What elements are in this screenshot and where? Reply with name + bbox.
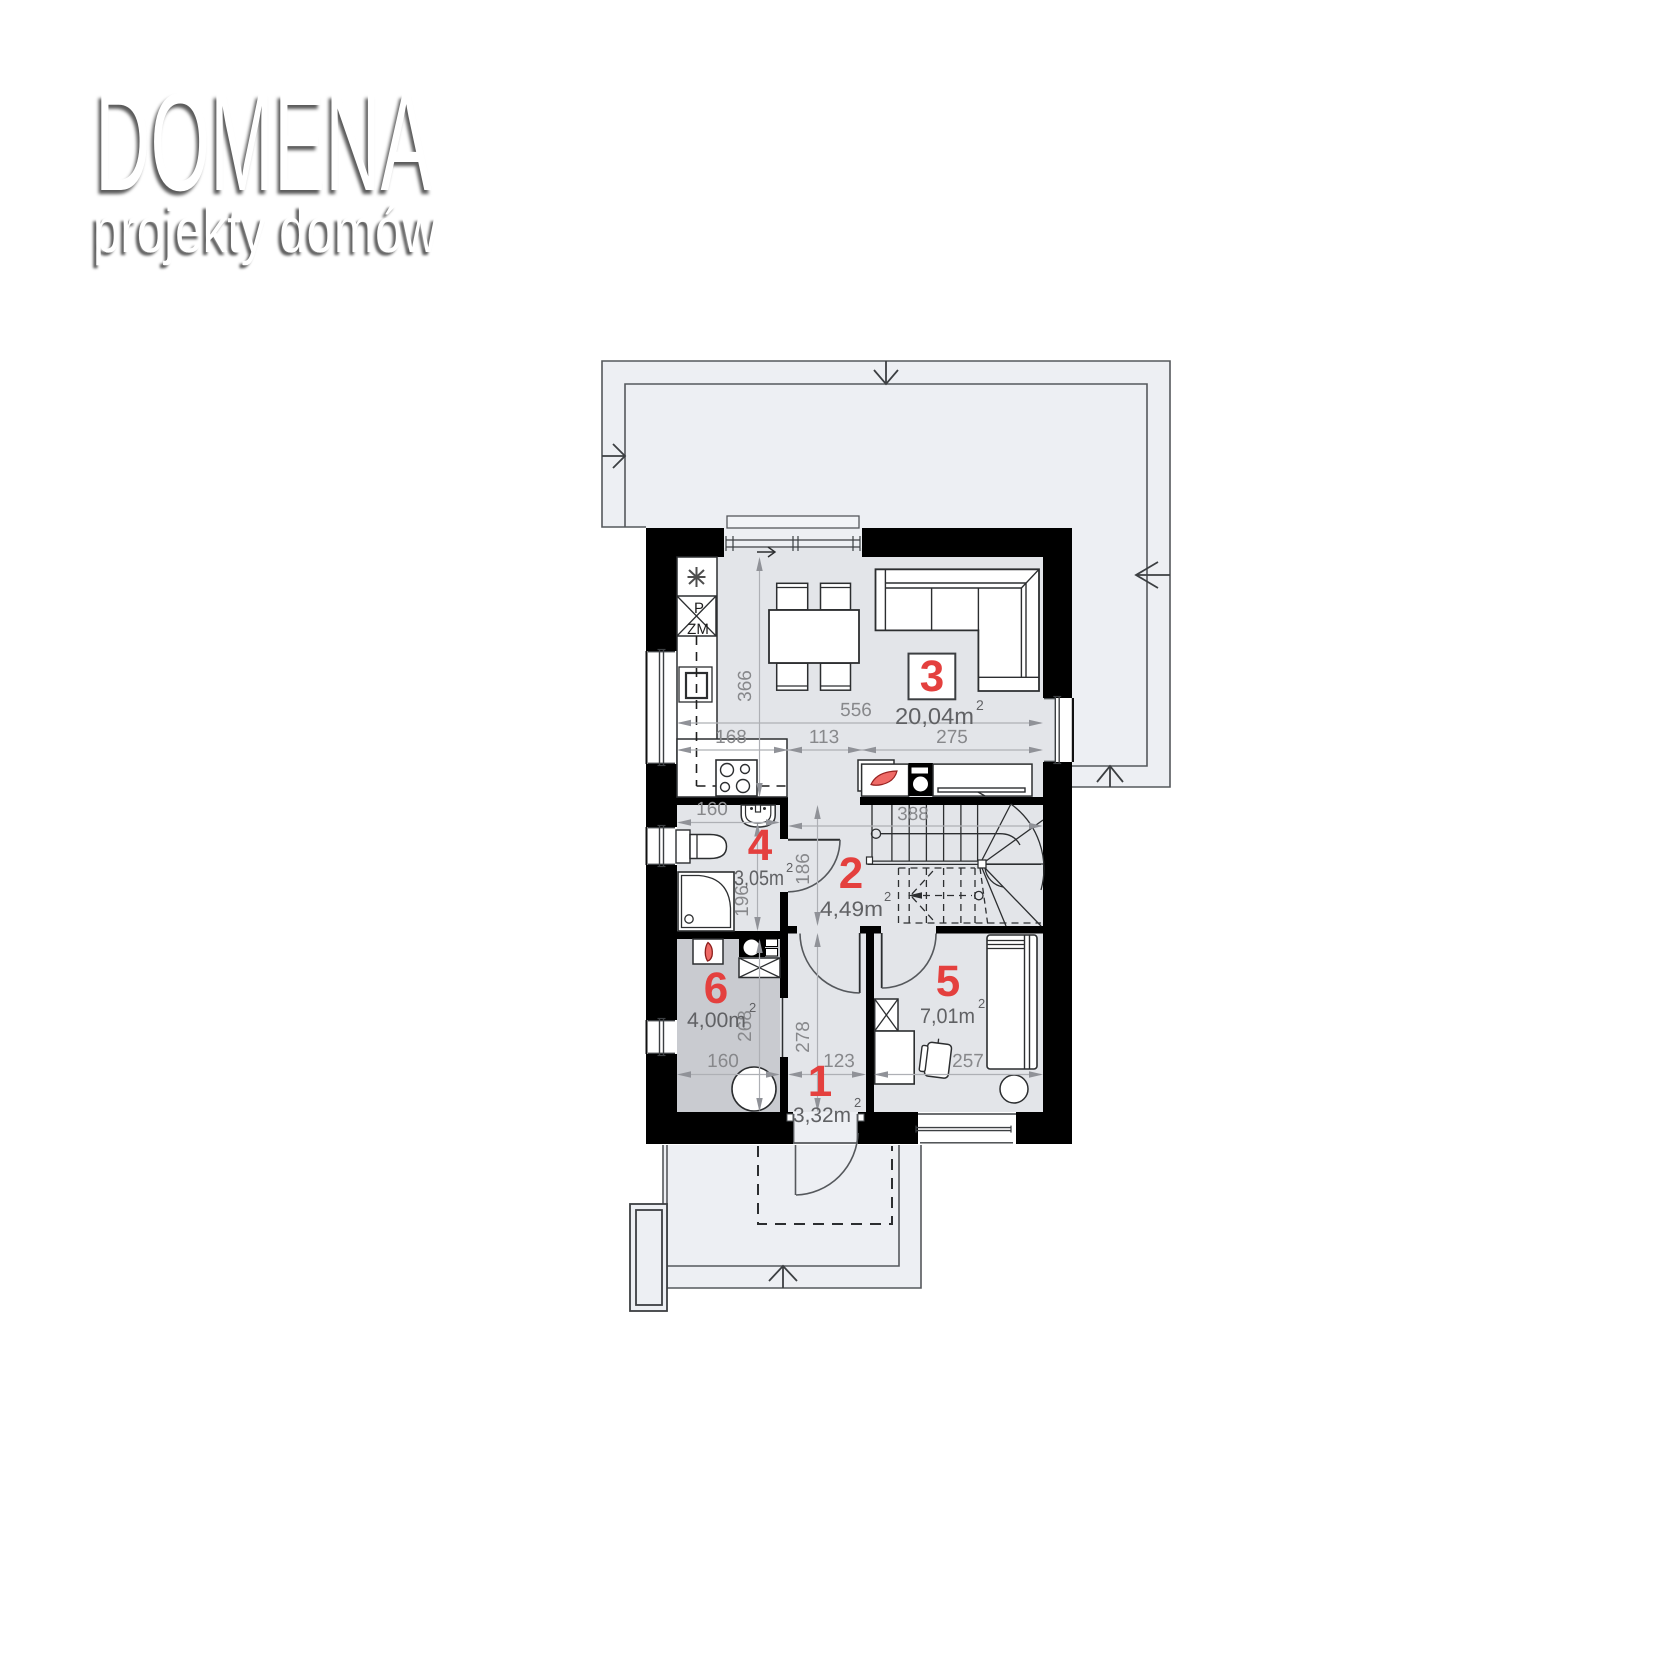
svg-text:20,04m: 20,04m (895, 703, 974, 729)
svg-text:186: 186 (793, 853, 814, 885)
svg-text:3,05m: 3,05m (734, 867, 784, 890)
svg-text:2: 2 (978, 996, 985, 1011)
svg-text:160: 160 (696, 799, 728, 820)
svg-text:2: 2 (976, 697, 984, 713)
svg-text:160: 160 (707, 1051, 739, 1072)
svg-text:275: 275 (936, 727, 968, 748)
svg-text:113: 113 (809, 727, 839, 748)
svg-text:4: 4 (748, 821, 773, 870)
svg-text:366: 366 (735, 670, 756, 702)
svg-text:278: 278 (793, 1021, 814, 1053)
svg-text:556: 556 (840, 700, 872, 721)
svg-text:2: 2 (786, 860, 793, 875)
svg-text:257: 257 (952, 1051, 984, 1072)
svg-text:ZM: ZM (687, 621, 709, 638)
svg-text:5: 5 (936, 957, 960, 1006)
svg-text:4,00m: 4,00m (687, 1009, 746, 1032)
svg-text:2: 2 (854, 1095, 861, 1110)
svg-text:388: 388 (897, 804, 929, 825)
svg-text:4,49m: 4,49m (820, 898, 883, 921)
svg-text:7,01m: 7,01m (920, 1005, 975, 1028)
svg-text:2: 2 (884, 889, 891, 904)
svg-text:3,32m: 3,32m (793, 1104, 851, 1127)
svg-text:3: 3 (920, 652, 944, 701)
svg-text:6: 6 (704, 964, 728, 1013)
svg-text:2: 2 (839, 849, 863, 898)
svg-text:1: 1 (808, 1057, 832, 1106)
svg-text:P: P (694, 600, 704, 617)
svg-text:2: 2 (749, 1000, 756, 1015)
svg-text:projekty domów: projekty domów (93, 194, 439, 266)
svg-text:168: 168 (715, 727, 747, 748)
